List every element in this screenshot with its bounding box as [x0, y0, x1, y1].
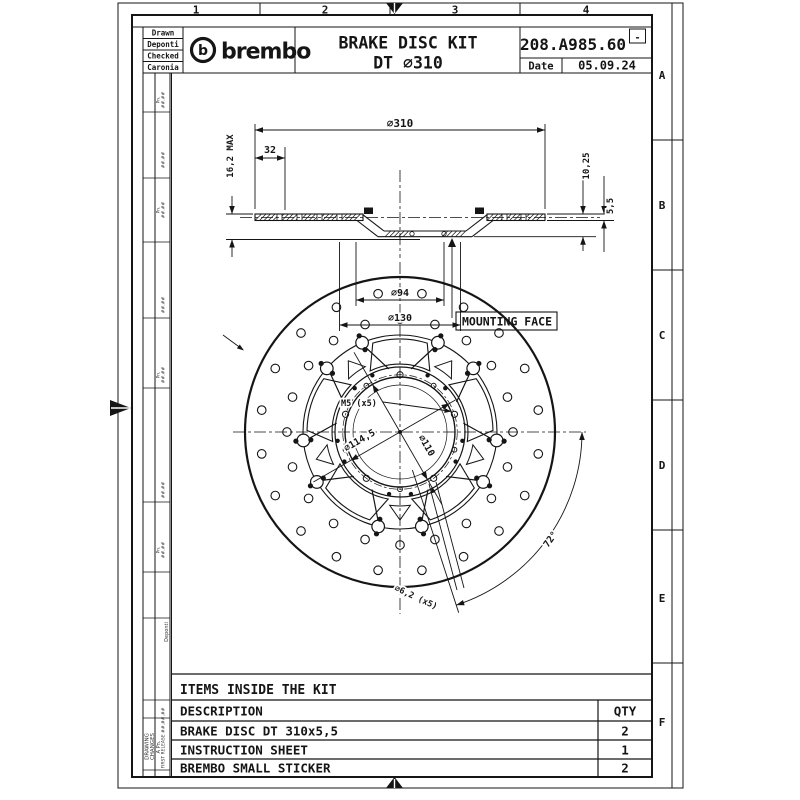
kit-table-row-qty: 2 — [621, 724, 629, 739]
drawing-title-line2: DT ∅310 — [373, 54, 443, 73]
kit-table-row-qty: 2 — [621, 761, 629, 776]
dim-max-thickness: 16,2 MAX — [226, 134, 236, 178]
kit-table-header: ITEMS INSIDE THE KIT — [180, 683, 337, 698]
zone-row-a: A — [659, 69, 666, 82]
date-value: 05.09.24 — [578, 59, 636, 73]
part-number: 208.A985.60 — [520, 35, 626, 54]
engineering-drawing-sheet: 1 2 3 4 A B C D E F Drawn Deponti Checke… — [0, 0, 800, 800]
dim-bolt-circle: ∅114,5 — [342, 427, 377, 454]
kit-table-row-qty: 1 — [621, 743, 629, 758]
mounting-face-label: MOUNTING FACE — [462, 315, 552, 329]
kit-table-col-description: DESCRIPTION — [180, 704, 263, 719]
kit-table-row-description: BRAKE DISC DT 310x5,5 — [180, 724, 338, 739]
dim-center-bore: ∅110 — [416, 433, 437, 459]
revision-author: Deponti — [164, 622, 170, 642]
kit-table-row-description: BREMBO SMALL STICKER — [180, 761, 331, 776]
zone-row-f: F — [659, 716, 666, 729]
zone-col-2: 2 — [322, 4, 329, 17]
revision-placeholder: ##.## — [161, 92, 167, 109]
dim-offset: 10,25 — [582, 152, 592, 179]
zone-row-e: E — [659, 592, 666, 605]
date-label: Date — [528, 61, 553, 73]
revision-placeholder: ##.## — [161, 482, 167, 499]
title-role-checked: Checked — [147, 52, 179, 61]
zone-col-4: 4 — [583, 4, 590, 17]
title-role-drawn-name: Deponti — [147, 40, 179, 49]
revision-placeholder: ##.## — [161, 152, 167, 169]
dim-inner-diameter: ∅94 — [391, 288, 409, 299]
revision-mark: - — [634, 33, 640, 44]
revision-placeholder: ##.## — [161, 297, 167, 314]
dim-small-holes: M5 (x5) — [341, 399, 377, 409]
kit-table-col-qty: QTY — [614, 704, 637, 719]
brembo-logo-wordmark: brembo — [221, 40, 311, 65]
zone-row-c: C — [659, 329, 666, 342]
revision-first-release: FIRST RELEASE ##.##.## — [161, 707, 167, 768]
dim-outer-diameter: ∅310 — [387, 117, 414, 130]
revision-placeholder: ##.## — [161, 367, 167, 384]
zone-col-3: 3 — [452, 4, 459, 17]
title-role-checked-name: Caronia — [147, 63, 179, 72]
revision-placeholder: ##.## — [161, 542, 167, 559]
zone-row-d: D — [659, 459, 666, 472]
title-role-drawn: Drawn — [152, 29, 175, 38]
kit-table-row-description: INSTRUCTION SHEET — [180, 743, 308, 758]
dim-hole-angle: 72° — [541, 529, 560, 549]
dim-band-width: 32 — [264, 145, 276, 156]
zone-row-b: B — [659, 199, 666, 212]
brembo-logo-b-glyph: b — [198, 43, 208, 59]
zone-col-1: 1 — [193, 4, 200, 17]
drawing-title-line1: BRAKE DISC KIT — [338, 34, 477, 53]
brake-disc-section-view — [226, 124, 614, 331]
revision-placeholder: ##.## — [161, 202, 167, 219]
dim-disc-thickness: 5,5 — [606, 198, 616, 214]
dim-hub-diameter: ∅130 — [388, 313, 412, 324]
